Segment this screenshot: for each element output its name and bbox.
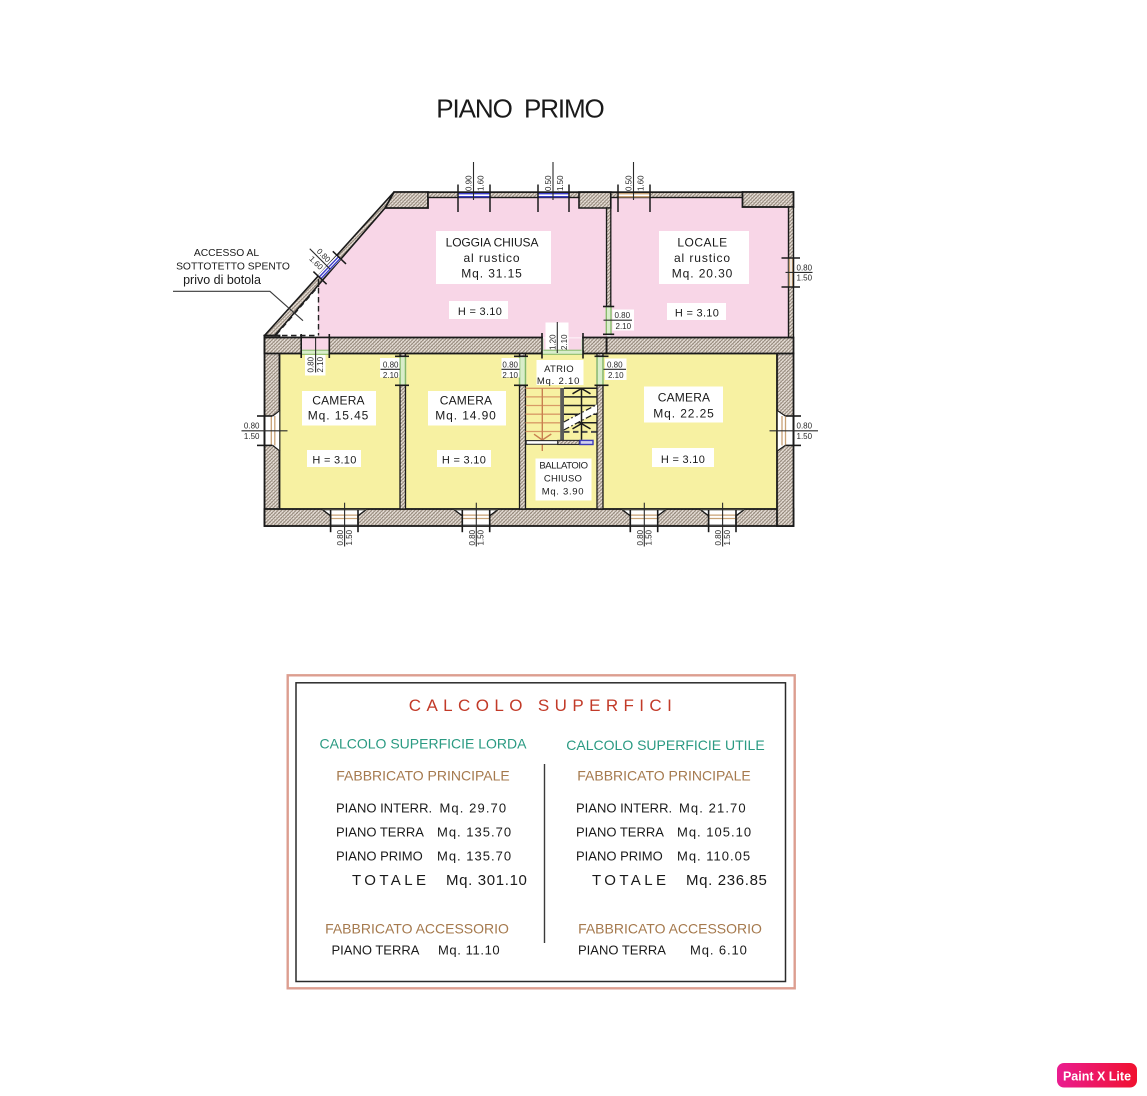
svg-text:al rustico: al rustico: [674, 251, 731, 265]
svg-text:LOCALE: LOCALE: [677, 236, 727, 250]
svg-text:1.50: 1.50: [797, 432, 813, 441]
svg-text:ATRIO: ATRIO: [544, 364, 574, 375]
svg-text:PIANO INTERR.: PIANO INTERR.: [336, 801, 432, 816]
svg-text:2.10: 2.10: [383, 371, 399, 380]
svg-text:FABBRICATO ACCESSORIO: FABBRICATO ACCESSORIO: [325, 921, 509, 937]
svg-text:1.20: 1.20: [549, 334, 558, 350]
svg-text:PIANO TERRA: PIANO TERRA: [576, 825, 664, 840]
svg-text:Mq. 105.10: Mq. 105.10: [677, 825, 752, 840]
svg-text:PIANO TERRA: PIANO TERRA: [332, 943, 420, 958]
svg-text:FABBRICATO ACCESSORIO: FABBRICATO ACCESSORIO: [578, 921, 762, 937]
svg-text:PIANO INTERR.: PIANO INTERR.: [576, 801, 672, 816]
svg-text:1.50: 1.50: [477, 529, 486, 545]
svg-text:Paint X Lite: Paint X Lite: [1063, 1070, 1131, 1084]
svg-text:TOTALE: TOTALE: [592, 872, 669, 889]
svg-text:2.10: 2.10: [608, 371, 624, 380]
svg-text:Mq. 236.85: Mq. 236.85: [686, 872, 768, 889]
svg-text:0.80: 0.80: [714, 529, 723, 545]
svg-text:0.50: 0.50: [544, 175, 553, 191]
svg-text:Mq. 20.30: Mq. 20.30: [672, 267, 733, 281]
svg-text:H = 3.10: H = 3.10: [442, 454, 486, 466]
svg-text:1.50: 1.50: [556, 175, 565, 191]
svg-text:PIANO PRIMO: PIANO PRIMO: [436, 94, 603, 124]
svg-text:Mq. 21.70: Mq. 21.70: [679, 801, 747, 816]
svg-text:1.50: 1.50: [345, 529, 354, 545]
svg-text:BALLATOIO: BALLATOIO: [539, 460, 587, 471]
svg-text:0.80: 0.80: [797, 263, 813, 272]
svg-text:Mq. 11.10: Mq. 11.10: [438, 943, 500, 958]
svg-text:Mq. 2.10: Mq. 2.10: [537, 376, 580, 387]
svg-text:0.50: 0.50: [625, 175, 634, 191]
svg-text:al rustico: al rustico: [463, 251, 520, 265]
svg-text:LOGGIA CHIUSA: LOGGIA CHIUSA: [446, 236, 539, 250]
svg-text:H = 3.10: H = 3.10: [675, 308, 719, 320]
svg-text:Mq. 135.70: Mq. 135.70: [437, 849, 512, 864]
svg-text:1.60: 1.60: [477, 175, 486, 191]
svg-text:2.10: 2.10: [502, 371, 518, 380]
svg-text:1.60: 1.60: [637, 175, 646, 191]
svg-text:CALCOLO SUPERFICI: CALCOLO SUPERFICI: [409, 696, 677, 715]
svg-text:0.80: 0.80: [607, 360, 623, 369]
svg-text:FABBRICATO PRINCIPALE: FABBRICATO PRINCIPALE: [577, 768, 751, 784]
svg-text:PIANO PRIMO: PIANO PRIMO: [336, 849, 423, 864]
svg-text:SOTTOTETTO SPENTO: SOTTOTETTO SPENTO: [176, 261, 290, 272]
svg-text:1.50: 1.50: [244, 432, 260, 441]
svg-text:2.10: 2.10: [316, 356, 325, 372]
svg-text:PIANO TERRA: PIANO TERRA: [578, 943, 666, 958]
svg-text:1.50: 1.50: [645, 529, 654, 545]
svg-text:Mq. 6.10: Mq. 6.10: [690, 943, 748, 958]
svg-text:Mq. 31.15: Mq. 31.15: [461, 267, 522, 281]
svg-text:0.80: 0.80: [307, 356, 316, 372]
svg-text:privo di botola: privo di botola: [183, 273, 261, 287]
svg-text:CALCOLO SUPERFICIE UTILE: CALCOLO SUPERFICIE UTILE: [566, 737, 764, 753]
svg-text:1.50: 1.50: [797, 274, 813, 283]
svg-text:1.50: 1.50: [723, 529, 732, 545]
svg-text:2.10: 2.10: [616, 322, 632, 331]
svg-text:PIANO TERRA: PIANO TERRA: [336, 825, 424, 840]
svg-text:H = 3.10: H = 3.10: [458, 306, 502, 318]
svg-text:0.80: 0.80: [244, 422, 260, 431]
svg-text:Mq. 14.90: Mq. 14.90: [435, 409, 496, 423]
svg-text:Mq. 301.10: Mq. 301.10: [446, 872, 528, 889]
svg-text:0.80: 0.80: [468, 529, 477, 545]
svg-text:0.80: 0.80: [797, 422, 813, 431]
svg-text:ACCESSO AL: ACCESSO AL: [194, 248, 260, 259]
svg-text:Mq. 110.05: Mq. 110.05: [677, 849, 751, 864]
svg-text:Mq. 15.45: Mq. 15.45: [308, 409, 369, 423]
svg-text:H = 3.10: H = 3.10: [661, 454, 705, 466]
svg-text:2.10: 2.10: [560, 334, 569, 350]
svg-text:CALCOLO SUPERFICIE LORDA: CALCOLO SUPERFICIE LORDA: [320, 736, 528, 752]
svg-text:0.80: 0.80: [336, 529, 345, 545]
svg-text:0.80: 0.80: [615, 311, 631, 320]
svg-text:PIANO PRIMO: PIANO PRIMO: [576, 849, 663, 864]
svg-text:Mq. 22.25: Mq. 22.25: [653, 407, 714, 421]
svg-text:0.90: 0.90: [465, 175, 474, 191]
svg-text:CAMERA: CAMERA: [312, 394, 365, 408]
svg-text:0.80: 0.80: [636, 529, 645, 545]
svg-text:Mq. 135.70: Mq. 135.70: [437, 825, 512, 840]
svg-text:FABBRICATO PRINCIPALE: FABBRICATO PRINCIPALE: [336, 768, 510, 784]
svg-text:Mq. 3.90: Mq. 3.90: [542, 487, 585, 498]
svg-text:H = 3.10: H = 3.10: [312, 454, 356, 466]
svg-text:CAMERA: CAMERA: [440, 394, 493, 408]
svg-text:0.80: 0.80: [383, 360, 399, 369]
svg-text:TOTALE: TOTALE: [352, 872, 429, 889]
svg-text:CHIUSO: CHIUSO: [544, 474, 582, 485]
svg-text:Mq. 29.70: Mq. 29.70: [440, 801, 508, 816]
svg-text:CAMERA: CAMERA: [658, 391, 711, 405]
svg-text:0.80: 0.80: [502, 360, 518, 369]
